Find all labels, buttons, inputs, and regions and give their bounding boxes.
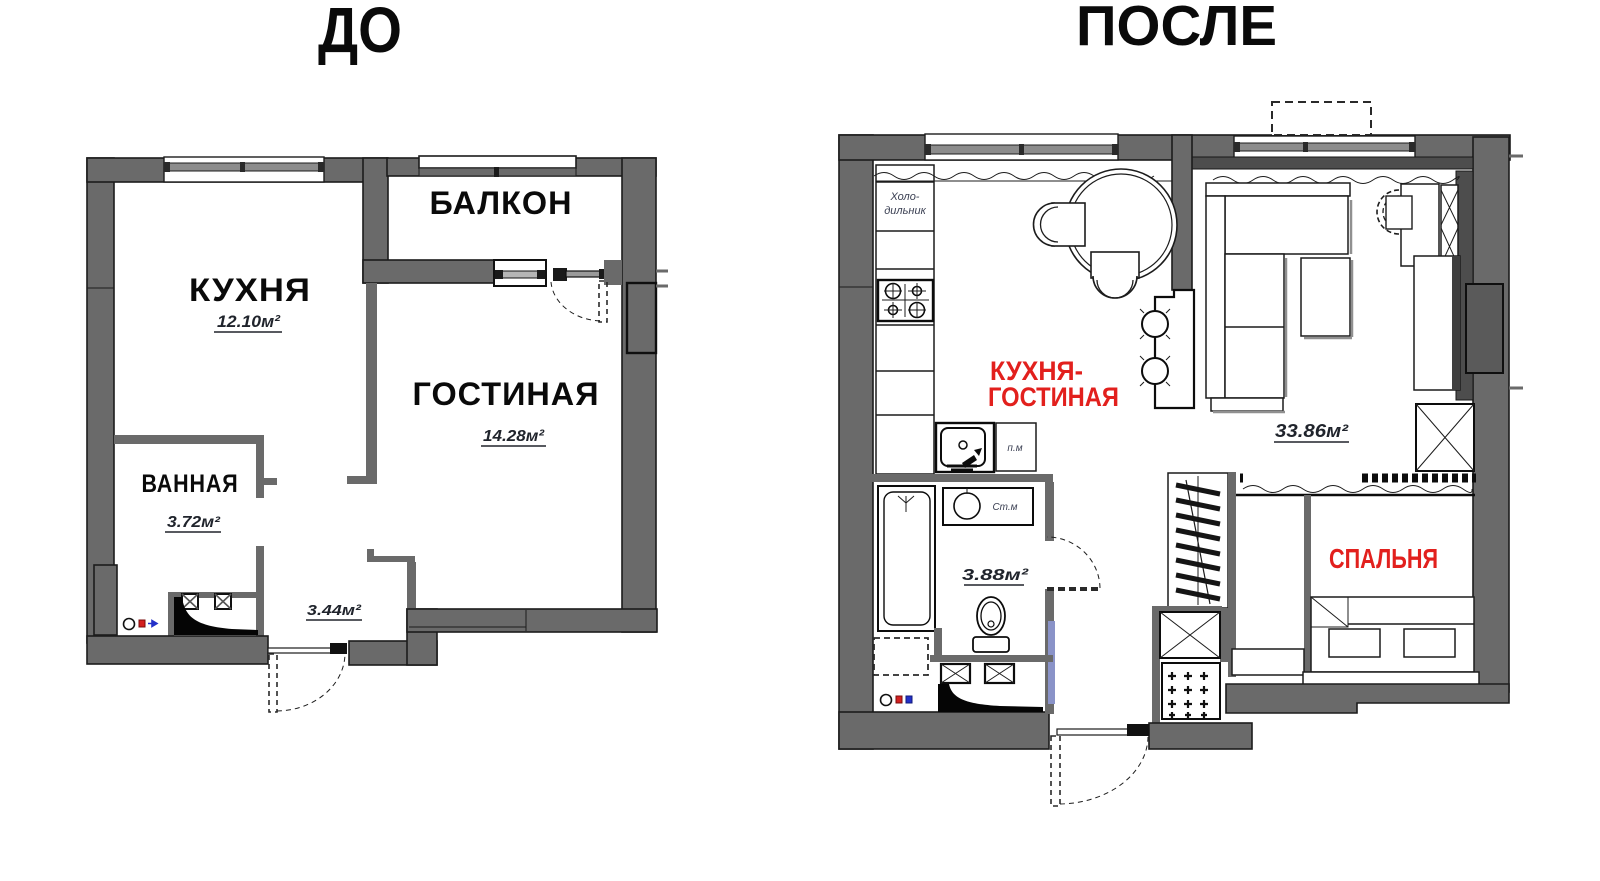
svg-text:33.86м²: 33.86м² (1275, 421, 1349, 441)
svg-text:3.44м²: 3.44м² (307, 602, 362, 619)
svg-text:БАЛКОН: БАЛКОН (430, 185, 573, 221)
svg-text:п.м: п.м (1007, 443, 1022, 454)
svg-text:Холо-: Холо- (890, 191, 920, 203)
svg-text:14.28м²: 14.28м² (483, 428, 545, 445)
svg-text:КУХНЯ: КУХНЯ (189, 272, 311, 308)
svg-text:ПОСЛЕ: ПОСЛЕ (1076, 0, 1277, 58)
svg-text:3.72м²: 3.72м² (167, 514, 221, 531)
svg-text:ВАННАЯ: ВАННАЯ (142, 470, 239, 498)
svg-text:дильник: дильник (884, 205, 926, 217)
svg-text:12.10м²: 12.10м² (217, 312, 281, 331)
svg-text:ГОСТИНАЯ: ГОСТИНАЯ (413, 376, 600, 412)
svg-text:ДО: ДО (318, 0, 402, 66)
svg-text:ГОСТИНАЯ: ГОСТИНАЯ (988, 382, 1119, 412)
svg-text:Ст.м: Ст.м (992, 502, 1017, 513)
svg-text:3.88м²: 3.88м² (962, 567, 1029, 584)
svg-text:СПАЛЬНЯ: СПАЛЬНЯ (1329, 543, 1438, 574)
